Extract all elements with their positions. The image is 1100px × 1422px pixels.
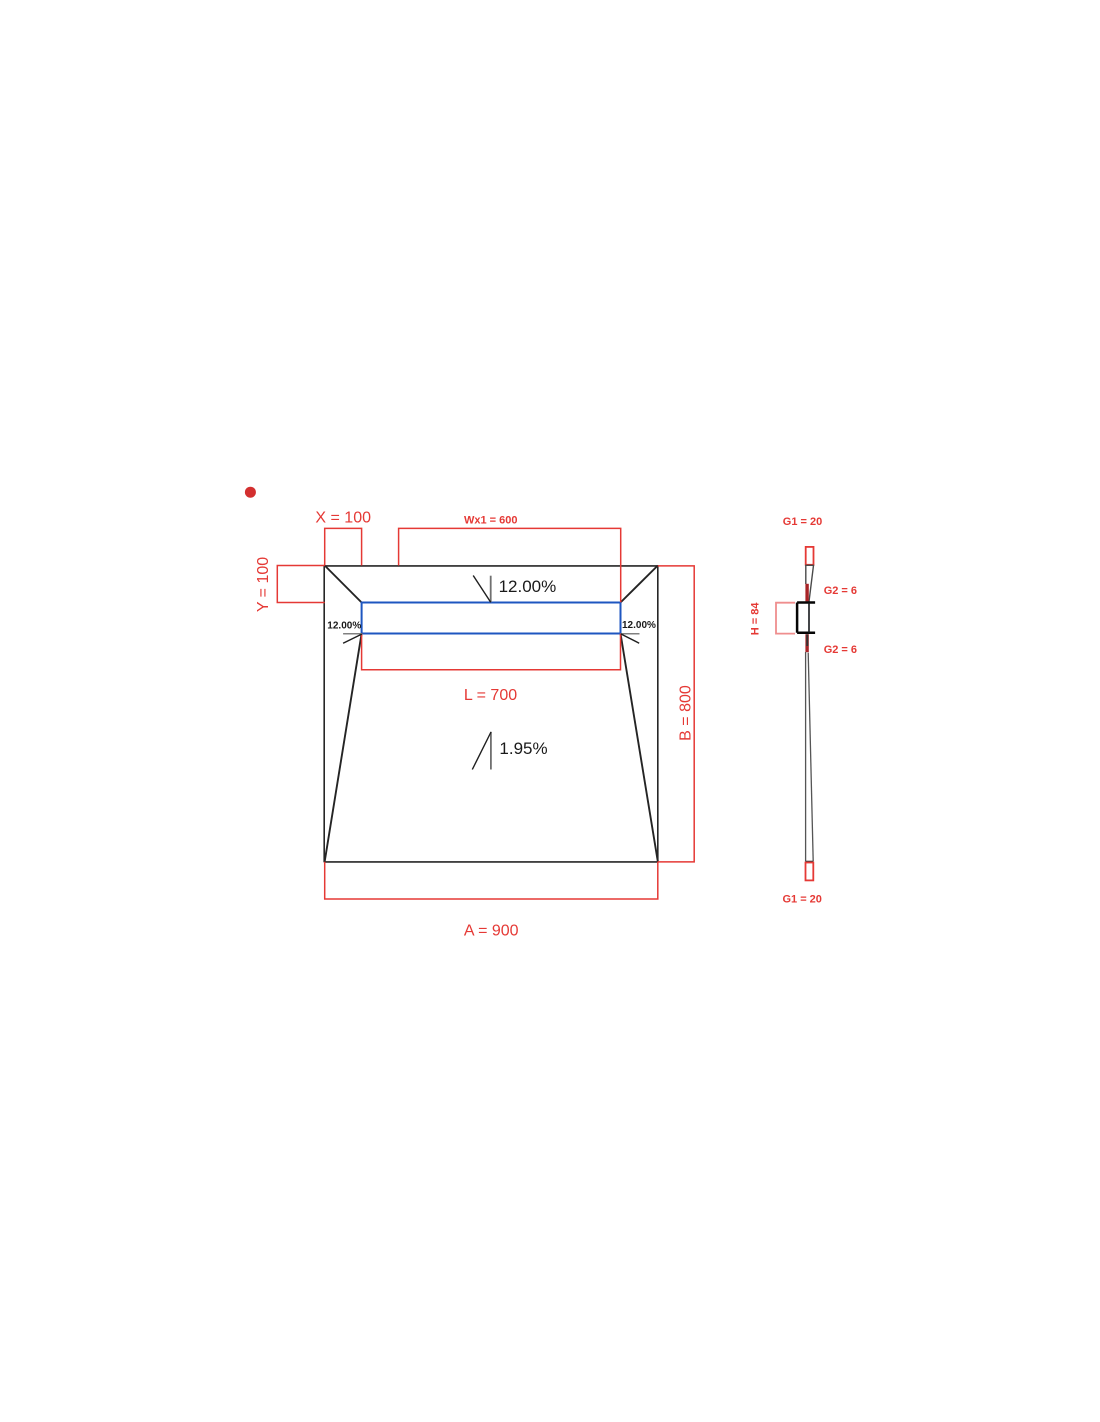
svg-text:G1 = 20: G1 = 20	[783, 516, 822, 528]
svg-text:L = 700: L = 700	[464, 687, 517, 704]
svg-text:12.00%: 12.00%	[499, 577, 557, 596]
svg-text:12.00%: 12.00%	[622, 620, 656, 631]
svg-text:X = 100: X = 100	[315, 510, 371, 527]
svg-text:G2 = 6: G2 = 6	[824, 644, 857, 656]
svg-text:G2 = 6: G2 = 6	[824, 585, 857, 597]
svg-text:H = 84: H = 84	[749, 602, 761, 636]
svg-text:G1 = 20: G1 = 20	[782, 893, 821, 905]
svg-text:B = 800: B = 800	[678, 685, 695, 741]
svg-text:A = 900: A = 900	[464, 922, 519, 939]
svg-text:Y = 100: Y = 100	[255, 557, 272, 612]
svg-text:Wx1 = 600: Wx1 = 600	[464, 514, 518, 526]
svg-text:1.95%: 1.95%	[499, 739, 547, 758]
svg-text:12.00%: 12.00%	[327, 621, 361, 632]
